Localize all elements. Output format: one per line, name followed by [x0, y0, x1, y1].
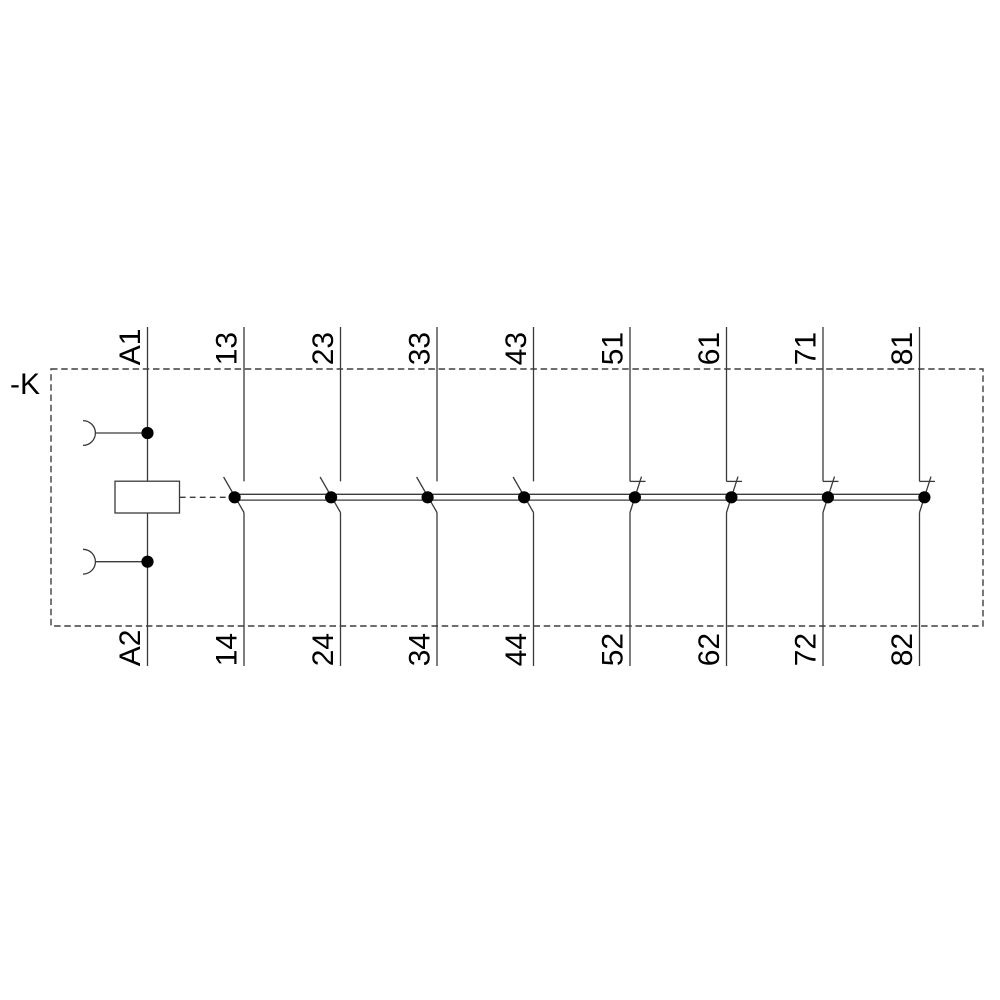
svg-text:43: 43: [500, 332, 533, 365]
svg-text:14: 14: [211, 633, 244, 666]
svg-text:34: 34: [404, 633, 437, 666]
svg-text:81: 81: [886, 332, 919, 365]
svg-text:72: 72: [790, 633, 823, 666]
svg-text:-K: -K: [10, 368, 40, 401]
svg-text:51: 51: [597, 332, 630, 365]
svg-text:A2: A2: [114, 630, 147, 667]
svg-text:82: 82: [886, 633, 919, 666]
svg-text:71: 71: [790, 332, 823, 365]
svg-text:24: 24: [307, 633, 340, 666]
svg-text:13: 13: [211, 332, 244, 365]
svg-text:33: 33: [404, 332, 437, 365]
svg-text:62: 62: [693, 633, 726, 666]
svg-text:61: 61: [693, 332, 726, 365]
svg-text:A1: A1: [114, 329, 147, 366]
svg-text:52: 52: [597, 633, 630, 666]
svg-text:23: 23: [307, 332, 340, 365]
svg-text:44: 44: [500, 633, 533, 666]
